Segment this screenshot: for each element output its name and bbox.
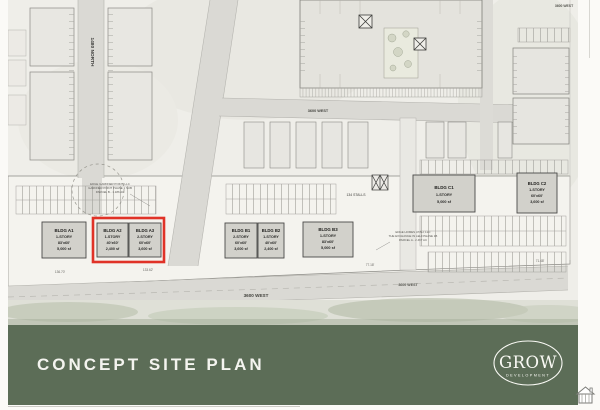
building-c2: BLDG C2 1-STORY 60'x60' 3,600 sf xyxy=(517,173,557,213)
street-label-3600-west-topright: 3600 WEST xyxy=(555,4,574,8)
street-label-3600-west-bottom: 3600 WEST xyxy=(244,293,269,298)
svg-text:3,600 sf: 3,600 sf xyxy=(138,247,152,251)
svg-text:2,400 sf: 2,400 sf xyxy=(264,247,278,251)
building-a2: BLDG A2 1-STORY 40'x60' 2,400 sf xyxy=(97,223,128,257)
logo-wordmark: GROW xyxy=(499,353,557,372)
refuse-enclosure xyxy=(372,175,388,190)
svg-text:1-STORY: 1-STORY xyxy=(436,193,453,197)
street-label-3600-west-bottom-right: 3600 WEST xyxy=(398,283,418,287)
concept-site-plan-page: EDGE GARDNER POINT, LLC GARDNER POINT PH… xyxy=(0,0,600,410)
svg-text:136.70': 136.70' xyxy=(55,270,66,274)
building-b2: BLDG B2 1-STORY 40'x60' 2,400 sf xyxy=(258,223,284,258)
svg-text:BLDG B3: BLDG B3 xyxy=(318,227,338,232)
svg-text:71.48': 71.48' xyxy=(536,259,545,263)
grow-development-logo: GROW DEVELOPMENT xyxy=(490,338,566,390)
svg-text:83'x60': 83'x60' xyxy=(58,241,70,245)
page-right-hairline xyxy=(589,0,590,58)
svg-text:2-STORY: 2-STORY xyxy=(137,235,153,239)
svg-text:2-STORY: 2-STORY xyxy=(233,235,249,239)
site-plan-svg: EDGE GARDNER POINT, LLC GARDNER POINT PH… xyxy=(8,0,578,325)
building-b1: BLDG B1 2-STORY 60'x60' 3,600 sf xyxy=(225,223,257,258)
svg-text:1-STORY: 1-STORY xyxy=(105,235,121,239)
svg-text:40'x60': 40'x60' xyxy=(106,241,118,245)
building-b3: BLDG B3 1-STORY 83'x60' 5,000 sf xyxy=(303,222,353,257)
svg-text:BLDG B1: BLDG B1 xyxy=(232,228,251,233)
aerial-greenery-strip xyxy=(8,298,578,325)
walkway-hatch xyxy=(300,88,482,97)
garage-ticks xyxy=(69,10,74,158)
site-plan-drawing: EDGE GARDNER POINT, LLC GARDNER POINT PH… xyxy=(8,0,578,325)
svg-text:5,000 sf: 5,000 sf xyxy=(57,247,72,251)
house-icon xyxy=(575,386,596,404)
street-1480-north xyxy=(78,0,104,178)
street-label-3600-west-mid: 3600 WEST xyxy=(308,109,329,113)
page-bottom-hairline xyxy=(8,406,300,407)
svg-text:3,600 sf: 3,600 sf xyxy=(530,200,544,204)
page-title: CONCEPT SITE PLAN xyxy=(8,355,265,375)
building-a3: BLDG A3 2-STORY 60'x60' 3,600 sf xyxy=(129,223,161,257)
logo-svg: GROW DEVELOPMENT xyxy=(490,338,566,390)
svg-text:60'x60': 60'x60' xyxy=(531,194,543,198)
svg-text:BLDG C2: BLDG C2 xyxy=(528,181,547,186)
svg-text:BLDG C1: BLDG C1 xyxy=(434,185,454,190)
svg-text:83'x60': 83'x60' xyxy=(322,240,334,244)
svg-text:3,600 sf: 3,600 sf xyxy=(234,247,248,251)
svg-text:40'x60': 40'x60' xyxy=(265,241,277,245)
svg-text:5,000 sf: 5,000 sf xyxy=(437,200,452,204)
svg-text:1-STORY: 1-STORY xyxy=(529,188,545,192)
building-c1: BLDG C1 1-STORY 5,000 sf xyxy=(413,175,475,212)
svg-text:BLDG A2: BLDG A2 xyxy=(103,228,122,233)
svg-text:60'x60': 60'x60' xyxy=(139,241,151,245)
svg-text:5,000 sf: 5,000 sf xyxy=(321,246,336,250)
svg-text:1-STORY: 1-STORY xyxy=(320,234,337,238)
svg-text:BLDG A3: BLDG A3 xyxy=(136,228,155,233)
svg-text:2,400 sf: 2,400 sf xyxy=(106,247,120,251)
svg-text:BLDG B2: BLDG B2 xyxy=(262,228,281,233)
title-banner: CONCEPT SITE PLAN GROW DEVELOPMENT xyxy=(8,325,578,405)
svg-text:133.62': 133.62' xyxy=(143,268,154,272)
stall-count-label: 134 STALLS xyxy=(347,193,367,197)
multifamily-block xyxy=(300,0,482,97)
svg-text:1-STORY: 1-STORY xyxy=(263,235,279,239)
logo-subtitle: DEVELOPMENT xyxy=(506,374,550,378)
stall-row xyxy=(420,160,568,174)
svg-text:BLDG A1: BLDG A1 xyxy=(54,228,74,233)
svg-text:60'x60': 60'x60' xyxy=(235,241,247,245)
svg-text:PARCEL A - 2.467 AC: PARCEL A - 2.467 AC xyxy=(399,238,427,242)
garage-ticks xyxy=(108,10,113,158)
svg-text:PARCEL B - 1.186 AC: PARCEL B - 1.186 AC xyxy=(96,190,124,194)
street-label-1480-north: 1480 NORTH xyxy=(89,37,95,67)
building-a1: BLDG A1 1-STORY 83'x60' 5,000 sf xyxy=(42,222,86,258)
svg-text:77.18': 77.18' xyxy=(366,263,375,267)
svg-text:1-STORY: 1-STORY xyxy=(56,235,73,239)
